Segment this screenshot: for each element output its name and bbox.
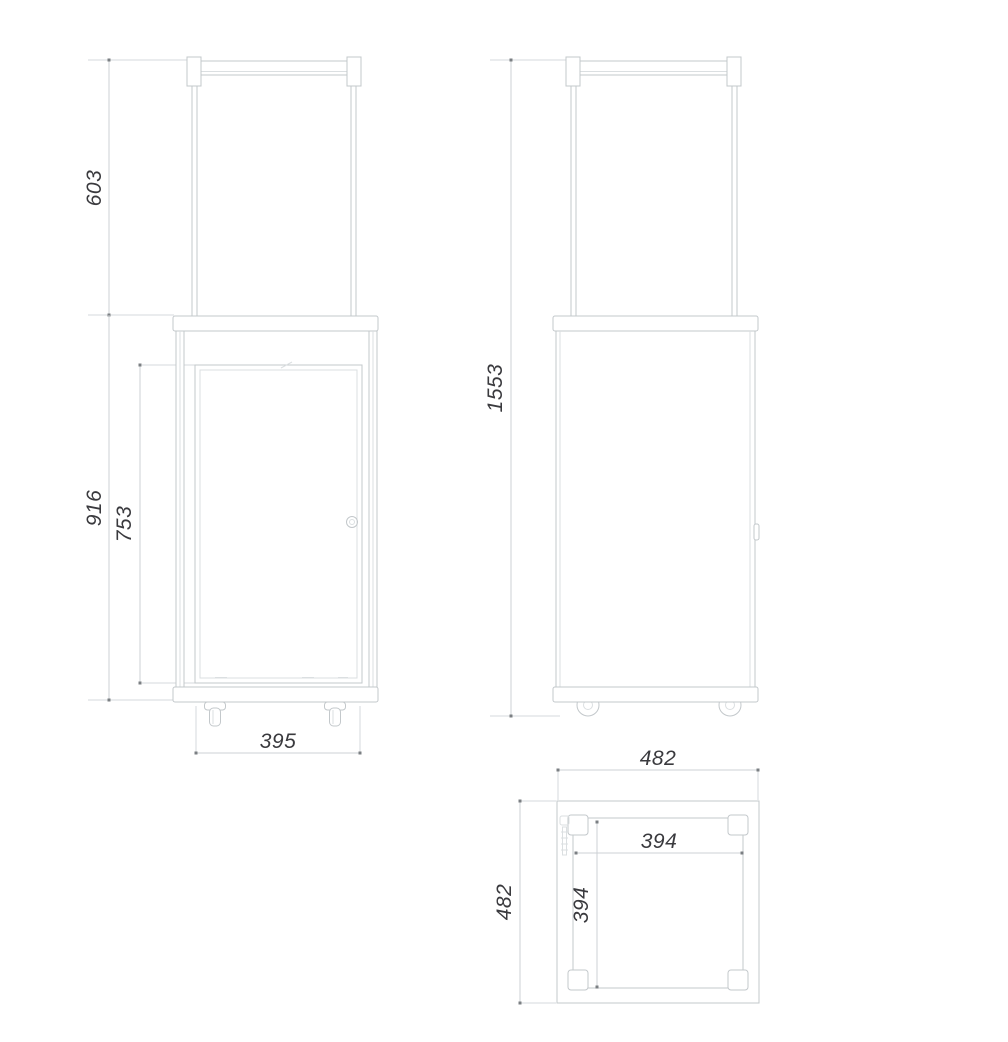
top-corner-post-tl	[568, 815, 588, 835]
side-crossbar-cap-right	[727, 57, 741, 86]
front-post-right	[351, 86, 356, 316]
side-crossbar	[580, 61, 728, 75]
front-crossbar-cap-right	[347, 57, 361, 86]
front-view: 603 916 753	[83, 57, 378, 755]
side-dim-total-height-label: 1553	[484, 364, 507, 413]
front-dimension-body-height: 916	[83, 315, 111, 702]
top-corner-post-bl	[568, 970, 588, 990]
front-crossbar	[200, 61, 349, 75]
top-dimension-outer-width: 482	[557, 747, 760, 772]
side-body-panel	[556, 331, 759, 687]
side-top-frame	[566, 57, 741, 316]
front-dim-width-label: 395	[260, 730, 297, 753]
front-dimension-top-height: 603	[83, 59, 111, 317]
side-post-right	[732, 86, 737, 316]
top-view: 482 482	[493, 747, 760, 1005]
side-post-left	[571, 86, 576, 316]
top-corner-post-tr	[728, 815, 748, 835]
side-dimension-total-height: 1553	[484, 59, 513, 718]
door-knob-icon	[347, 517, 358, 528]
front-body-frame-right	[369, 331, 377, 687]
side-crossbar-cap-left	[566, 57, 580, 86]
front-dim-door-height-label: 753	[113, 506, 136, 543]
top-dimension-inner-width: 394	[575, 830, 744, 855]
top-dimension-inner-depth: 394	[570, 821, 599, 989]
front-dim-body-height-label: 916	[83, 490, 106, 527]
top-dim-outer-width-label: 482	[640, 747, 677, 770]
front-top-frame	[187, 57, 361, 316]
top-corner-post-br	[728, 970, 748, 990]
front-caster-left	[205, 702, 226, 726]
front-door-panel	[195, 362, 362, 683]
front-base-plate	[173, 687, 378, 702]
side-knob-bump	[754, 524, 759, 540]
front-dim-top-height-label: 603	[83, 170, 106, 207]
top-dim-inner-width-label: 394	[641, 830, 678, 853]
front-crossbar-cap-left	[187, 57, 201, 86]
front-top-cap-plate	[173, 316, 378, 331]
front-body-frame-left	[176, 331, 184, 687]
side-base-plate	[553, 687, 758, 702]
front-extension-lines	[88, 60, 360, 752]
side-top-cap-plate	[553, 316, 758, 331]
front-dimension-width: 395	[195, 730, 362, 755]
top-dimension-outer-depth: 482	[493, 800, 522, 1005]
top-dim-outer-depth-label: 482	[493, 884, 516, 921]
top-extension-lines	[520, 770, 758, 1003]
technical-drawing-canvas: 603 916 753	[0, 0, 1008, 1042]
technical-drawing-page: 603 916 753	[0, 0, 1008, 1042]
front-dimension-door-height: 753	[113, 364, 142, 685]
front-post-left	[192, 86, 197, 316]
top-dim-inner-depth-label: 394	[570, 887, 593, 924]
side-view: 1553	[484, 57, 759, 718]
front-caster-right	[325, 702, 346, 726]
